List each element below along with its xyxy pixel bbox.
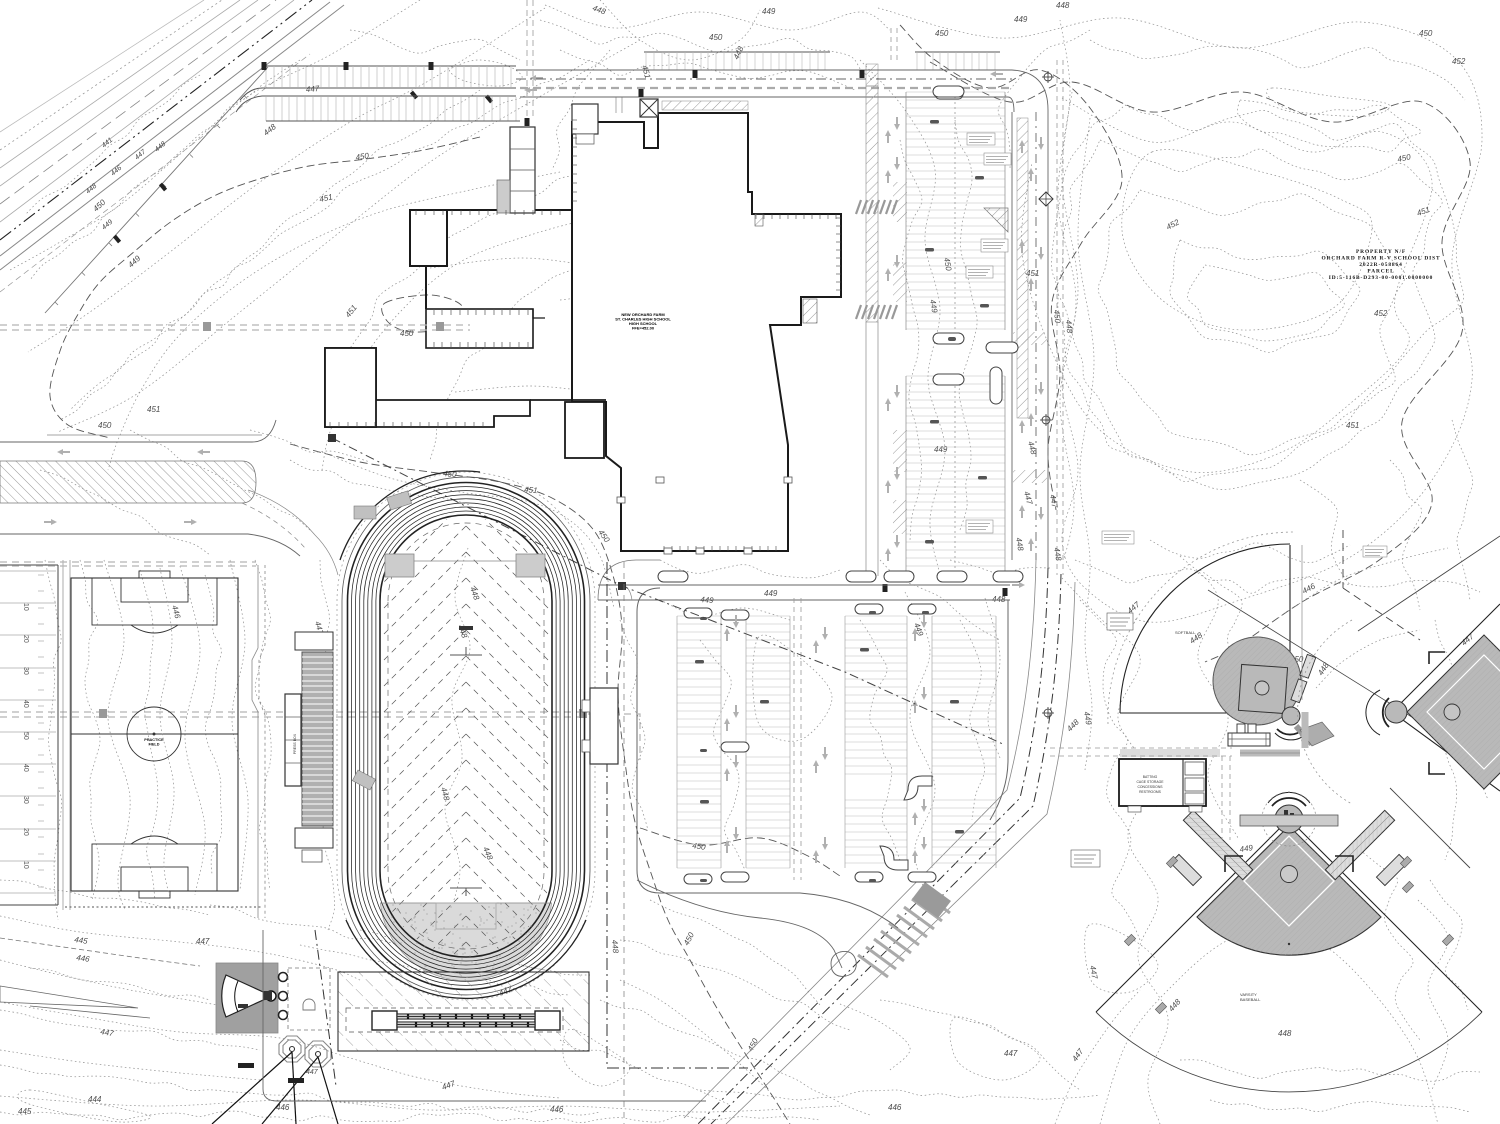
- svg-text:445: 445: [74, 935, 89, 946]
- svg-text:PRESS BOX: PRESS BOX: [293, 733, 297, 754]
- svg-text:452: 452: [1452, 57, 1466, 66]
- svg-text:450: 450: [98, 421, 112, 430]
- svg-text:450: 450: [709, 33, 723, 42]
- svg-text:449: 449: [1014, 15, 1028, 24]
- svg-text:2022R-058864: 2022R-058864: [1359, 262, 1402, 268]
- svg-text:446: 446: [76, 953, 91, 964]
- svg-text:BASEBALL: BASEBALL: [1240, 997, 1261, 1002]
- svg-text:447: 447: [1004, 1049, 1018, 1058]
- svg-text:CONCESSIONS: CONCESSIONS: [1137, 785, 1163, 789]
- svg-text:20: 20: [22, 828, 29, 836]
- svg-text:CAGE STORAGE: CAGE STORAGE: [1136, 780, 1164, 784]
- svg-text:ORCHARD FARM R-V SCHOOL DIST: ORCHARD FARM R-V SCHOOL DIST: [1321, 256, 1440, 262]
- svg-text:448: 448: [610, 939, 620, 954]
- svg-text:448: 448: [992, 595, 1006, 604]
- svg-text:PARCEL: PARCEL: [1367, 269, 1394, 275]
- svg-text:ID:5-116B-D293-00-0001.0000000: ID:5-116B-D293-00-0001.0000000: [1329, 275, 1433, 281]
- svg-text:450: 450: [355, 151, 370, 162]
- svg-text:SOFTBALL: SOFTBALL: [1175, 630, 1196, 635]
- svg-text:BATTING: BATTING: [1143, 775, 1158, 779]
- svg-text:10: 10: [22, 603, 29, 611]
- svg-text:449: 449: [1239, 843, 1254, 854]
- svg-text:PRACTICE: PRACTICE: [144, 738, 164, 742]
- svg-text:10: 10: [22, 861, 29, 869]
- svg-text:FIELD: FIELD: [149, 743, 160, 747]
- svg-text:447: 447: [196, 937, 210, 946]
- svg-text:444: 444: [88, 1095, 102, 1104]
- svg-text:448: 448: [1278, 1029, 1292, 1038]
- svg-text:445: 445: [18, 1107, 32, 1116]
- svg-text:449: 449: [934, 445, 948, 454]
- svg-text:452: 452: [1374, 309, 1388, 318]
- svg-text:50: 50: [22, 732, 29, 740]
- svg-text:450: 450: [935, 29, 949, 38]
- svg-text:PROPERTY N/F: PROPERTY N/F: [1356, 249, 1406, 255]
- svg-text:40: 40: [22, 700, 29, 708]
- svg-text:446: 446: [888, 1103, 902, 1112]
- svg-text:450: 450: [692, 841, 707, 852]
- svg-text:448: 448: [1056, 1, 1070, 10]
- svg-text:450: 450: [1419, 29, 1433, 38]
- svg-text:448: 448: [1064, 319, 1074, 334]
- svg-text:449: 449: [762, 7, 776, 16]
- svg-text:447: 447: [306, 84, 320, 94]
- svg-text:30: 30: [22, 796, 29, 804]
- svg-text:451: 451: [147, 405, 160, 414]
- svg-text:449: 449: [764, 589, 778, 598]
- svg-text:20: 20: [22, 635, 29, 643]
- svg-text:446: 446: [550, 1105, 564, 1114]
- svg-text:447: 447: [306, 1069, 319, 1076]
- svg-text:RESTROOMS: RESTROOMS: [1139, 790, 1162, 794]
- svg-text:451: 451: [1346, 421, 1359, 430]
- svg-text:451: 451: [524, 485, 538, 495]
- svg-text:30: 30: [22, 667, 29, 675]
- svg-text:FFE=452.00: FFE=452.00: [632, 326, 655, 331]
- svg-text:40: 40: [22, 764, 29, 772]
